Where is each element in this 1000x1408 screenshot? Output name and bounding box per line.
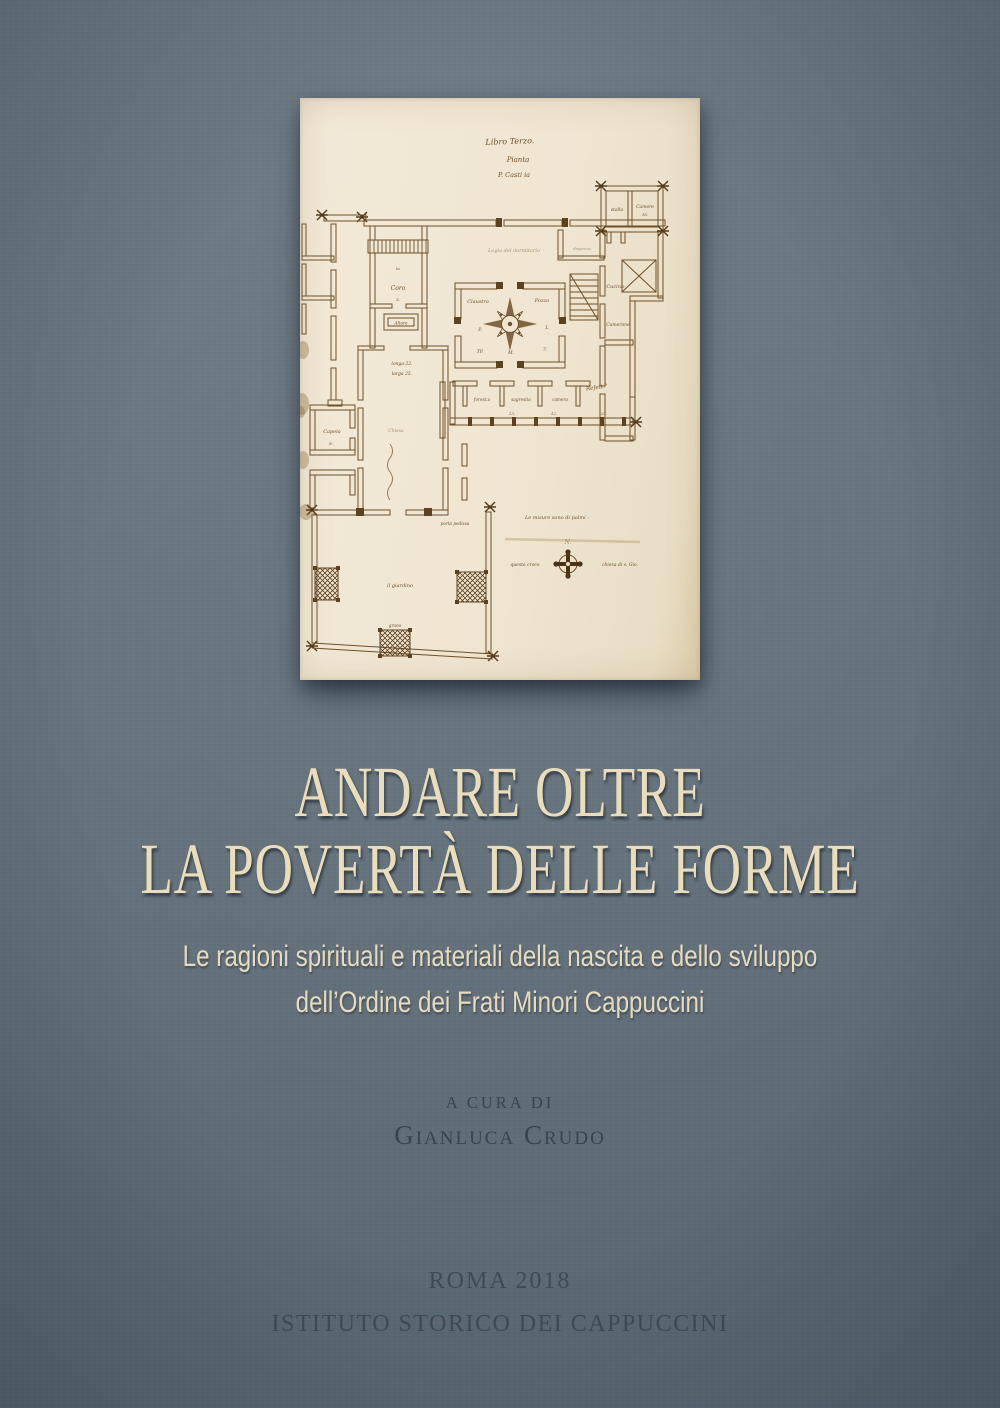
plan-mark-p: P. (477, 327, 482, 333)
subtitle-line-1: Le ragioni spirituali e materiali della … (90, 934, 910, 980)
editor-prefix: A CURA DI (0, 1092, 1000, 1114)
plan-label-croce-left: questa croce (510, 562, 540, 568)
compass-rose (483, 297, 537, 351)
plan-label-faded-mark: N. (564, 539, 572, 546)
plan-label-giardino: il giardino (387, 583, 413, 589)
plan-label-camera: camera (552, 397, 568, 402)
plan-label-capela-num: 8. (329, 441, 333, 446)
plan-label-header3: P. Casti ia (497, 171, 530, 179)
plan-label-coro-la: la (396, 266, 400, 271)
plan-label-grano: grano (389, 623, 402, 628)
plan-label-stalla: stalla (611, 207, 624, 213)
garden-bed (378, 628, 412, 658)
book-title: ANDARE OLTRE LA POVERTÀ DELLE FORME (0, 754, 1000, 908)
editor-name: Gianluca Crudo (0, 1118, 1000, 1152)
plan-label-foresteria: forest.a (473, 397, 491, 402)
book-cover: { "page": { "type": "book-cover" }, "col… (0, 0, 1000, 1408)
garden-bed (313, 566, 340, 602)
floor-plan-drawing: Libro Terzo. Pianta P. Casti ia stalla C… (300, 98, 700, 680)
plan-num-25: 25. (600, 411, 607, 416)
imprint-publisher: ISTITUTO STORICO DEI CAPPUCCINI (0, 1309, 1000, 1339)
book-subtitle: Le ragioni spirituali e materiali della … (0, 934, 1000, 1026)
plan-label-header1: Libro Terzo. (484, 136, 534, 147)
plan-num-12: 12. (551, 411, 557, 416)
manuscript-plan-panel: Libro Terzo. Pianta P. Casti ia stalla C… (300, 98, 700, 680)
plan-label-cucina: Cucina- (606, 284, 626, 290)
plan-mark-tp: TP. (477, 349, 484, 355)
plan-mark-m: M. (507, 350, 515, 356)
garden-bed (455, 570, 488, 604)
plan-label-camere-num: 16. (642, 212, 648, 217)
plan-label-dim1: longa 22. (391, 361, 413, 367)
plan-label-capela: Capela (323, 429, 341, 435)
plan-label-camere: Camere (636, 204, 654, 210)
plan-label-camerone: Camerone (606, 322, 630, 328)
plan-label-chiesa: Chiesa (388, 428, 404, 434)
plan-label-altare: Altare (393, 321, 408, 326)
plan-label-croce-right: chiesa di s. Gio. (602, 562, 639, 568)
plan-label-coro: Coro (391, 285, 406, 292)
plan-num-13: 13. (509, 411, 515, 416)
plan-mark-l: L (545, 325, 549, 331)
plan-label-header2: Pianta (506, 156, 530, 164)
imprint-block: ROMA 2018 ISTITUTO STORICO DEI CAPPUCCIN… (0, 1266, 1000, 1339)
plan-label-logia: Logia del dormitorio (487, 248, 540, 254)
title-line-1: ANDARE OLTRE (130, 754, 870, 831)
imprint-place-year: ROMA 2018 (0, 1266, 1000, 1296)
plan-label-porta: porta pedissa (441, 521, 470, 526)
plan-label-claustro: Claustro (467, 299, 489, 305)
plan-label-pozzo: Pozzo (534, 298, 549, 304)
plan-label-misure: Le misure sono di palmi - (524, 515, 589, 521)
plan-mark-7: 7. (543, 347, 548, 353)
plan-label-sagrestia: sagrestia (511, 397, 531, 402)
plan-label-dispensa: dispensa (573, 246, 591, 251)
plan-label-refettorio: Refett.° (585, 384, 608, 393)
cross-symbol (553, 549, 582, 578)
title-line-2: LA POVERTÀ DELLE FORME (130, 831, 870, 908)
plan-label-dim2: larga 25. (392, 371, 413, 377)
plan-label-coro-s: S. (396, 297, 400, 302)
subtitle-line-2: dell’Ordine dei Frati Minori Cappuccini (90, 980, 910, 1026)
editor-block: A CURA DI Gianluca Crudo (0, 1092, 1000, 1152)
